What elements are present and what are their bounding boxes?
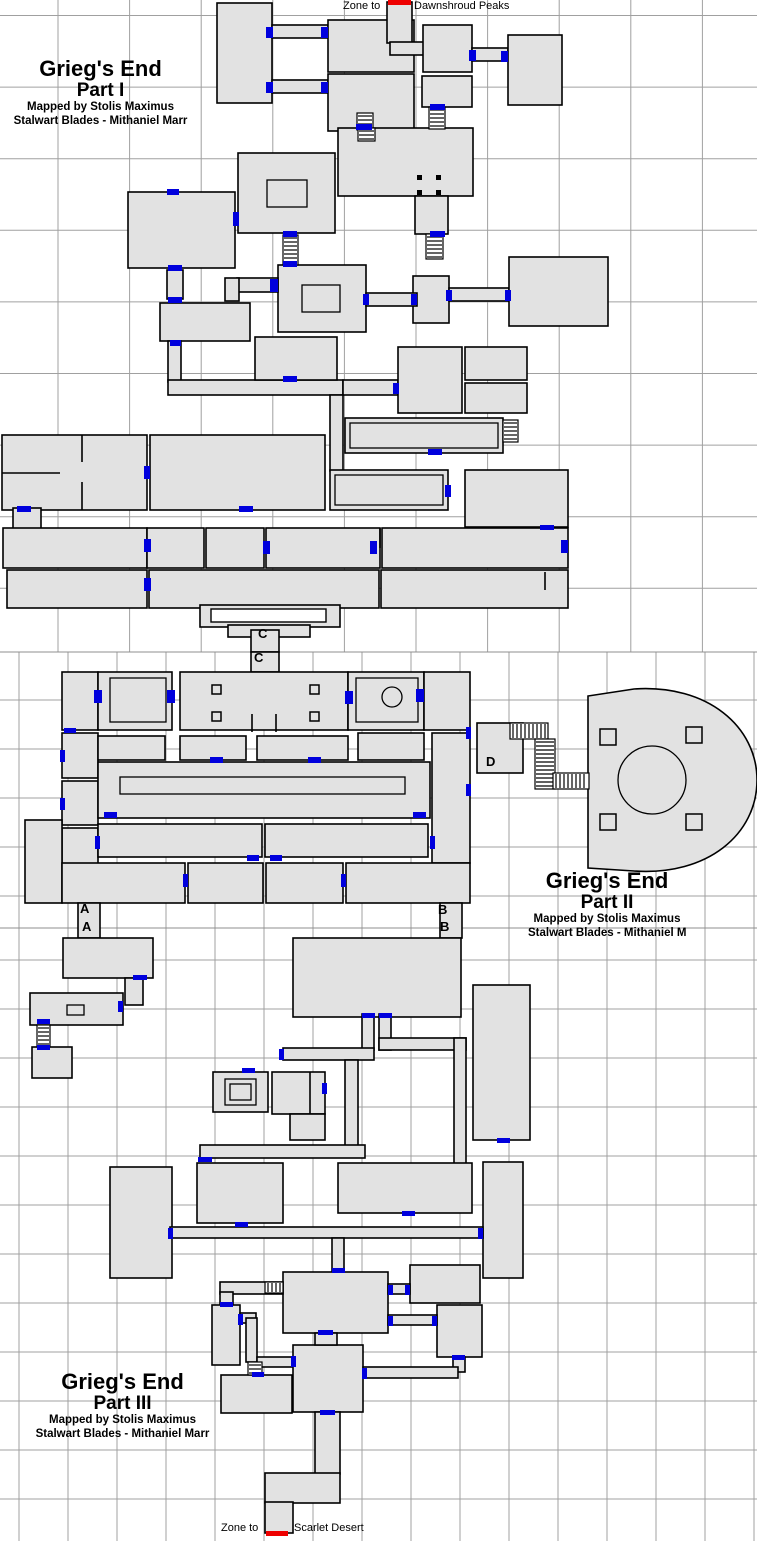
door-marker — [183, 874, 188, 887]
door-marker — [379, 1013, 392, 1018]
map-room — [128, 192, 235, 268]
part-3-guild-line: Stalwart Blades - Mithaniel Marr — [25, 1428, 220, 1442]
map-room — [62, 863, 185, 903]
map-room — [149, 570, 379, 608]
map-room — [432, 733, 470, 863]
door-marker — [167, 690, 175, 703]
door-marker — [270, 279, 278, 292]
map-room — [363, 1367, 458, 1378]
map-room — [379, 1038, 466, 1050]
door-marker — [118, 1001, 123, 1012]
map-room — [387, 2, 412, 43]
door-marker — [362, 1368, 367, 1379]
door-marker — [279, 1049, 284, 1060]
map-room — [213, 1072, 268, 1112]
map-dot — [417, 175, 422, 180]
map-room — [338, 1163, 472, 1213]
door-marker — [497, 1138, 510, 1143]
part-2-title-block: Grieg's End Part II Mapped by Stolis Max… — [528, 869, 686, 940]
map-dome-room — [588, 689, 757, 872]
map-room — [98, 736, 165, 760]
map-room — [449, 288, 509, 301]
map-connector-letter-a: A — [82, 919, 91, 934]
map-room — [257, 736, 348, 760]
map-room — [188, 863, 263, 903]
map-room — [206, 528, 264, 568]
door-marker — [17, 506, 31, 512]
map-room — [7, 570, 147, 608]
door-marker — [247, 855, 259, 861]
door-marker — [393, 383, 399, 394]
zone-to-label-bottom: Zone to — [221, 1522, 258, 1534]
map-dot — [417, 190, 422, 195]
door-marker — [416, 689, 424, 702]
door-marker — [320, 1410, 335, 1415]
pillar-icon — [600, 729, 616, 745]
door-marker — [242, 1068, 255, 1073]
door-marker — [561, 540, 568, 553]
map-room — [225, 278, 239, 301]
map-room — [413, 276, 449, 323]
map-room — [272, 25, 328, 38]
map-room — [315, 1412, 340, 1474]
door-marker — [239, 506, 253, 512]
map-room — [508, 35, 562, 105]
part-1-part-label: Part I — [8, 81, 193, 102]
map-room — [509, 257, 608, 326]
part-3-part-label: Part III — [25, 1394, 220, 1415]
map-room — [465, 470, 568, 527]
map-room — [293, 1345, 363, 1412]
map-room — [180, 736, 246, 760]
map-connector-letter-c: C — [258, 626, 267, 641]
map-room — [398, 347, 462, 413]
part-3-mapped-by: Mapped by Stolis Maximus — [25, 1414, 220, 1428]
map-room — [180, 672, 348, 730]
map-room — [212, 1305, 240, 1365]
map-room — [366, 293, 417, 306]
door-marker — [210, 757, 223, 763]
door-marker — [452, 1355, 465, 1360]
map-room — [266, 528, 380, 568]
map-room — [62, 672, 98, 730]
door-marker — [283, 231, 297, 237]
door-marker — [430, 104, 445, 110]
map-room — [382, 528, 568, 568]
map-room — [422, 76, 472, 107]
door-marker — [144, 466, 150, 479]
door-marker — [446, 290, 452, 301]
map-connector-letter-d: D — [486, 754, 495, 769]
map-room — [168, 380, 343, 395]
map-room — [265, 1473, 340, 1503]
pillar-icon — [310, 685, 319, 694]
part-1-zone-name: Grieg's End — [8, 57, 193, 81]
zone-name-scarlet-desert: Scarlet Desert — [294, 1522, 364, 1534]
door-marker — [266, 27, 273, 38]
door-marker — [402, 1211, 415, 1216]
door-marker — [283, 376, 297, 382]
map-room — [150, 435, 325, 510]
map-room — [283, 1272, 388, 1333]
map-room — [168, 341, 181, 382]
part-2-guild-line: Stalwart Blades - Mithaniel Marr — [528, 927, 686, 941]
door-marker — [60, 798, 65, 810]
map-connector-letter-a: A — [80, 901, 89, 916]
map-room — [160, 303, 250, 341]
map-room — [98, 762, 430, 818]
zone-line-marker — [388, 0, 411, 5]
map-room — [283, 1048, 374, 1060]
door-marker — [37, 1045, 50, 1050]
door-marker — [428, 449, 442, 455]
part-1-guild-line: Stalwart Blades - Mithaniel Marr — [8, 115, 193, 129]
door-marker — [318, 1330, 333, 1335]
door-marker — [283, 261, 297, 267]
door-marker — [345, 691, 353, 704]
map-room — [62, 781, 98, 825]
map-room — [63, 938, 153, 978]
door-marker — [94, 690, 102, 703]
dungeon-map-canvas — [0, 0, 757, 1541]
part-1-mapped-by: Mapped by Stolis Maximus — [8, 101, 193, 115]
door-marker — [341, 874, 346, 887]
map-room — [346, 863, 470, 903]
door-marker — [466, 784, 471, 796]
door-marker — [478, 1228, 483, 1239]
pillar-icon — [212, 685, 221, 694]
map-room — [246, 1318, 257, 1362]
map-room — [465, 383, 527, 413]
door-marker — [321, 82, 328, 93]
map-room — [266, 863, 343, 903]
part-3-title-block: Grieg's End Part III Mapped by Stolis Ma… — [25, 1370, 220, 1441]
door-marker — [388, 1285, 393, 1295]
map-room — [221, 1375, 292, 1413]
door-marker — [411, 294, 417, 305]
door-marker — [104, 812, 117, 818]
map-room — [167, 270, 183, 299]
door-marker — [413, 812, 426, 818]
map-island — [211, 609, 326, 622]
map-room — [170, 1227, 483, 1238]
door-marker — [469, 50, 476, 61]
pillar-icon — [310, 712, 319, 721]
door-marker — [540, 525, 554, 530]
part-2-part-label: Part II — [528, 893, 686, 914]
door-marker — [322, 1083, 327, 1094]
door-marker — [308, 757, 321, 763]
pillar-icon — [686, 814, 702, 830]
zone-to-label-top: Zone to — [343, 0, 380, 12]
map-room — [415, 196, 448, 234]
door-marker — [168, 297, 182, 303]
map-room — [410, 1265, 480, 1303]
door-marker — [37, 1019, 50, 1024]
map-room — [272, 1072, 325, 1114]
map-room — [424, 672, 470, 730]
door-marker — [505, 290, 511, 301]
door-marker — [332, 1268, 345, 1273]
map-connector-letter-c: C — [254, 650, 263, 665]
ladder-icon — [426, 234, 443, 259]
map-room — [381, 570, 568, 608]
map-room — [278, 265, 366, 332]
door-marker — [321, 27, 328, 38]
door-marker — [430, 836, 435, 849]
door-marker — [466, 727, 471, 739]
map-room — [483, 1162, 523, 1278]
map-room — [32, 1047, 72, 1078]
door-marker — [238, 1314, 243, 1325]
part-1-title-block: Grieg's End Part I Mapped by Stolis Maxi… — [8, 57, 193, 128]
pillar-icon — [686, 727, 702, 743]
map-room — [265, 1502, 293, 1533]
map-room — [330, 395, 343, 471]
map-room — [217, 3, 272, 103]
map-room — [197, 1163, 283, 1223]
map-dot — [436, 190, 441, 195]
door-marker — [430, 231, 445, 237]
door-marker — [263, 541, 270, 554]
map-room — [98, 672, 172, 730]
map-room — [147, 528, 204, 568]
map-room — [388, 1315, 437, 1325]
map-room — [110, 1167, 172, 1278]
door-marker — [167, 189, 179, 195]
map-room — [265, 824, 428, 857]
door-marker — [270, 855, 282, 861]
map-room — [362, 1014, 374, 1050]
door-marker — [168, 265, 182, 271]
map-room — [255, 337, 337, 380]
map-connector-letter-b: B — [438, 902, 447, 917]
door-marker — [370, 541, 377, 554]
map-dot — [436, 175, 441, 180]
grieg's-end-map-page: Grieg's End Part I Mapped by Stolis Maxi… — [0, 0, 757, 1541]
door-marker — [144, 578, 151, 591]
door-marker — [252, 1372, 264, 1377]
door-marker — [233, 212, 239, 226]
door-marker — [445, 485, 451, 497]
map-room — [330, 470, 448, 510]
map-room — [345, 1060, 358, 1148]
door-marker — [235, 1222, 248, 1227]
map-room — [25, 820, 62, 903]
map-room — [293, 938, 461, 1017]
map-room — [437, 1305, 482, 1357]
zone-line-marker — [266, 1531, 288, 1536]
map-room — [290, 1114, 325, 1140]
map-room — [423, 25, 472, 72]
map-room — [125, 978, 143, 1005]
part-3-zone-name: Grieg's End — [25, 1370, 220, 1394]
zone-name-dawnshroud: Dawnshroud Peaks — [414, 0, 509, 12]
map-room — [98, 824, 262, 857]
part-2-zone-name: Grieg's End — [528, 869, 686, 893]
part-2-mapped-by: Mapped by Stolis Maximus — [528, 913, 686, 927]
door-marker — [356, 124, 372, 130]
map-room — [272, 80, 328, 93]
door-marker — [362, 1013, 375, 1018]
door-marker — [266, 82, 273, 93]
map-room — [62, 733, 98, 778]
map-room — [454, 1038, 466, 1164]
door-marker — [144, 539, 151, 552]
door-marker — [198, 1157, 212, 1162]
map-room — [62, 828, 98, 866]
pillar-icon — [212, 712, 221, 721]
door-marker — [170, 340, 181, 346]
door-marker — [168, 1228, 173, 1239]
door-marker — [60, 750, 65, 762]
map-room — [465, 347, 527, 380]
map-room — [3, 528, 147, 568]
door-marker — [388, 1316, 393, 1326]
door-marker — [133, 975, 147, 980]
door-marker — [363, 294, 369, 305]
map-room — [200, 1145, 365, 1158]
map-connector-letter-b: B — [440, 919, 449, 934]
map-room — [343, 380, 398, 395]
door-marker — [64, 728, 76, 733]
map-room — [473, 985, 530, 1140]
map-room — [238, 153, 335, 233]
door-marker — [95, 836, 100, 849]
map-room — [348, 672, 424, 730]
door-marker — [405, 1285, 410, 1295]
pillar-icon — [600, 814, 616, 830]
door-marker — [432, 1316, 437, 1326]
map-room — [358, 733, 424, 760]
door-marker — [291, 1356, 296, 1367]
door-marker — [501, 51, 508, 62]
door-marker — [220, 1302, 233, 1307]
